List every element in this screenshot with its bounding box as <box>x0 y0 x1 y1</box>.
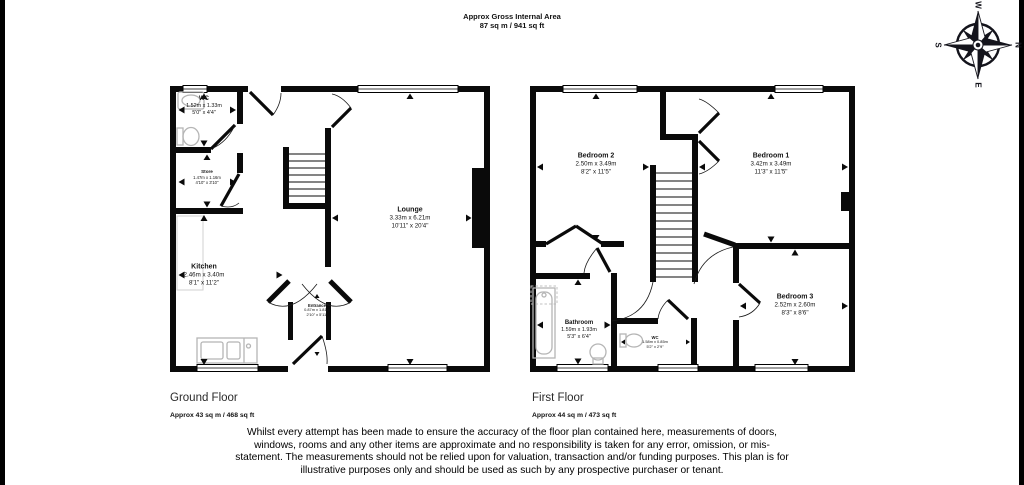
door-swing <box>293 336 327 364</box>
ground-floor-area: Approx 43 sq m / 468 sq ft <box>170 412 254 419</box>
window <box>563 86 637 93</box>
door-swing <box>584 248 610 273</box>
gross-area-value: 87 sq m / 941 sq ft <box>0 21 1024 30</box>
landing-diagonal-wall <box>704 234 735 245</box>
gross-area-title: Approx Gross Internal Area <box>0 12 1024 21</box>
first-floor-area: Approx 44 sq m / 473 sq ft <box>532 412 616 419</box>
first-stairs <box>656 173 692 277</box>
ground-floor-title: Ground Floor <box>170 392 238 404</box>
room-label-store: Store 1.47m x 1.16m 4'10" x 3'10" <box>193 169 221 185</box>
room-label-bedroom2: Bedroom 2 2.50m x 3.49m 8'2" x 11'5" <box>576 152 617 175</box>
door-swing <box>250 92 281 115</box>
room-label-entrance: Entrance 0.87m x 1.81m 2'10" x 5'11" <box>304 303 330 317</box>
ground-floor-plan <box>170 85 490 373</box>
window <box>197 365 258 372</box>
window <box>775 86 823 93</box>
compass-north-label: N <box>1014 42 1023 48</box>
front-door-opening <box>288 365 328 373</box>
window <box>658 365 698 372</box>
ground-walls <box>170 86 490 372</box>
floorplan-drawing: N E S W <box>0 0 1024 485</box>
door-swing <box>694 247 733 284</box>
toilet-icon <box>177 128 199 146</box>
ground-fixtures <box>177 92 257 363</box>
window <box>358 86 458 93</box>
floorplan-page: N E S W <box>0 0 1024 485</box>
window <box>388 365 447 372</box>
room-label-kitchen: Kitchen 2.46m x 3.40m 8'1" x 11'2" <box>184 263 225 286</box>
ground-stairs <box>289 154 325 196</box>
compass-west-label: W <box>974 1 983 9</box>
door-swing <box>699 99 719 133</box>
ground-lobby-walls <box>268 281 351 302</box>
disclaimer-text: Whilst every attempt has been made to en… <box>232 427 792 478</box>
door-swing <box>612 282 653 321</box>
basin-icon <box>590 344 606 364</box>
room-label-bathroom: Bathroom 1.59m x 1.93m 5'3" x 6'4" <box>561 320 597 340</box>
toilet-icon <box>620 334 643 347</box>
compass-east-label: E <box>974 82 983 88</box>
room-label-wc-first: WC 1.58m x 0.85m 5'2" x 2'9" <box>642 335 668 349</box>
door-swing <box>699 141 719 174</box>
door-swing <box>332 94 351 127</box>
room-label-lounge: Lounge 3.33m x 6.21m 10'11" x 20'4" <box>390 206 431 229</box>
window <box>557 365 608 372</box>
compass-south-label: S <box>934 42 943 48</box>
chimney-breast <box>841 192 849 211</box>
door-swing <box>211 125 235 149</box>
first-floor-title: First Floor <box>532 392 584 404</box>
door-swing <box>658 300 688 319</box>
chimney-breast <box>472 168 484 248</box>
room-label-bedroom1: Bedroom 1 3.42m x 3.49m 11'3" x 11'5" <box>751 152 792 175</box>
door-swing <box>739 284 760 317</box>
room-label-bedroom3: Bedroom 3 2.52m x 2.60m 8'3" x 8'6" <box>775 293 816 316</box>
back-door-opening <box>248 85 281 93</box>
window <box>755 365 808 372</box>
room-label-wc-ground: WC 1.52m x 1.33m 5'0" x 4'4" <box>186 96 222 116</box>
